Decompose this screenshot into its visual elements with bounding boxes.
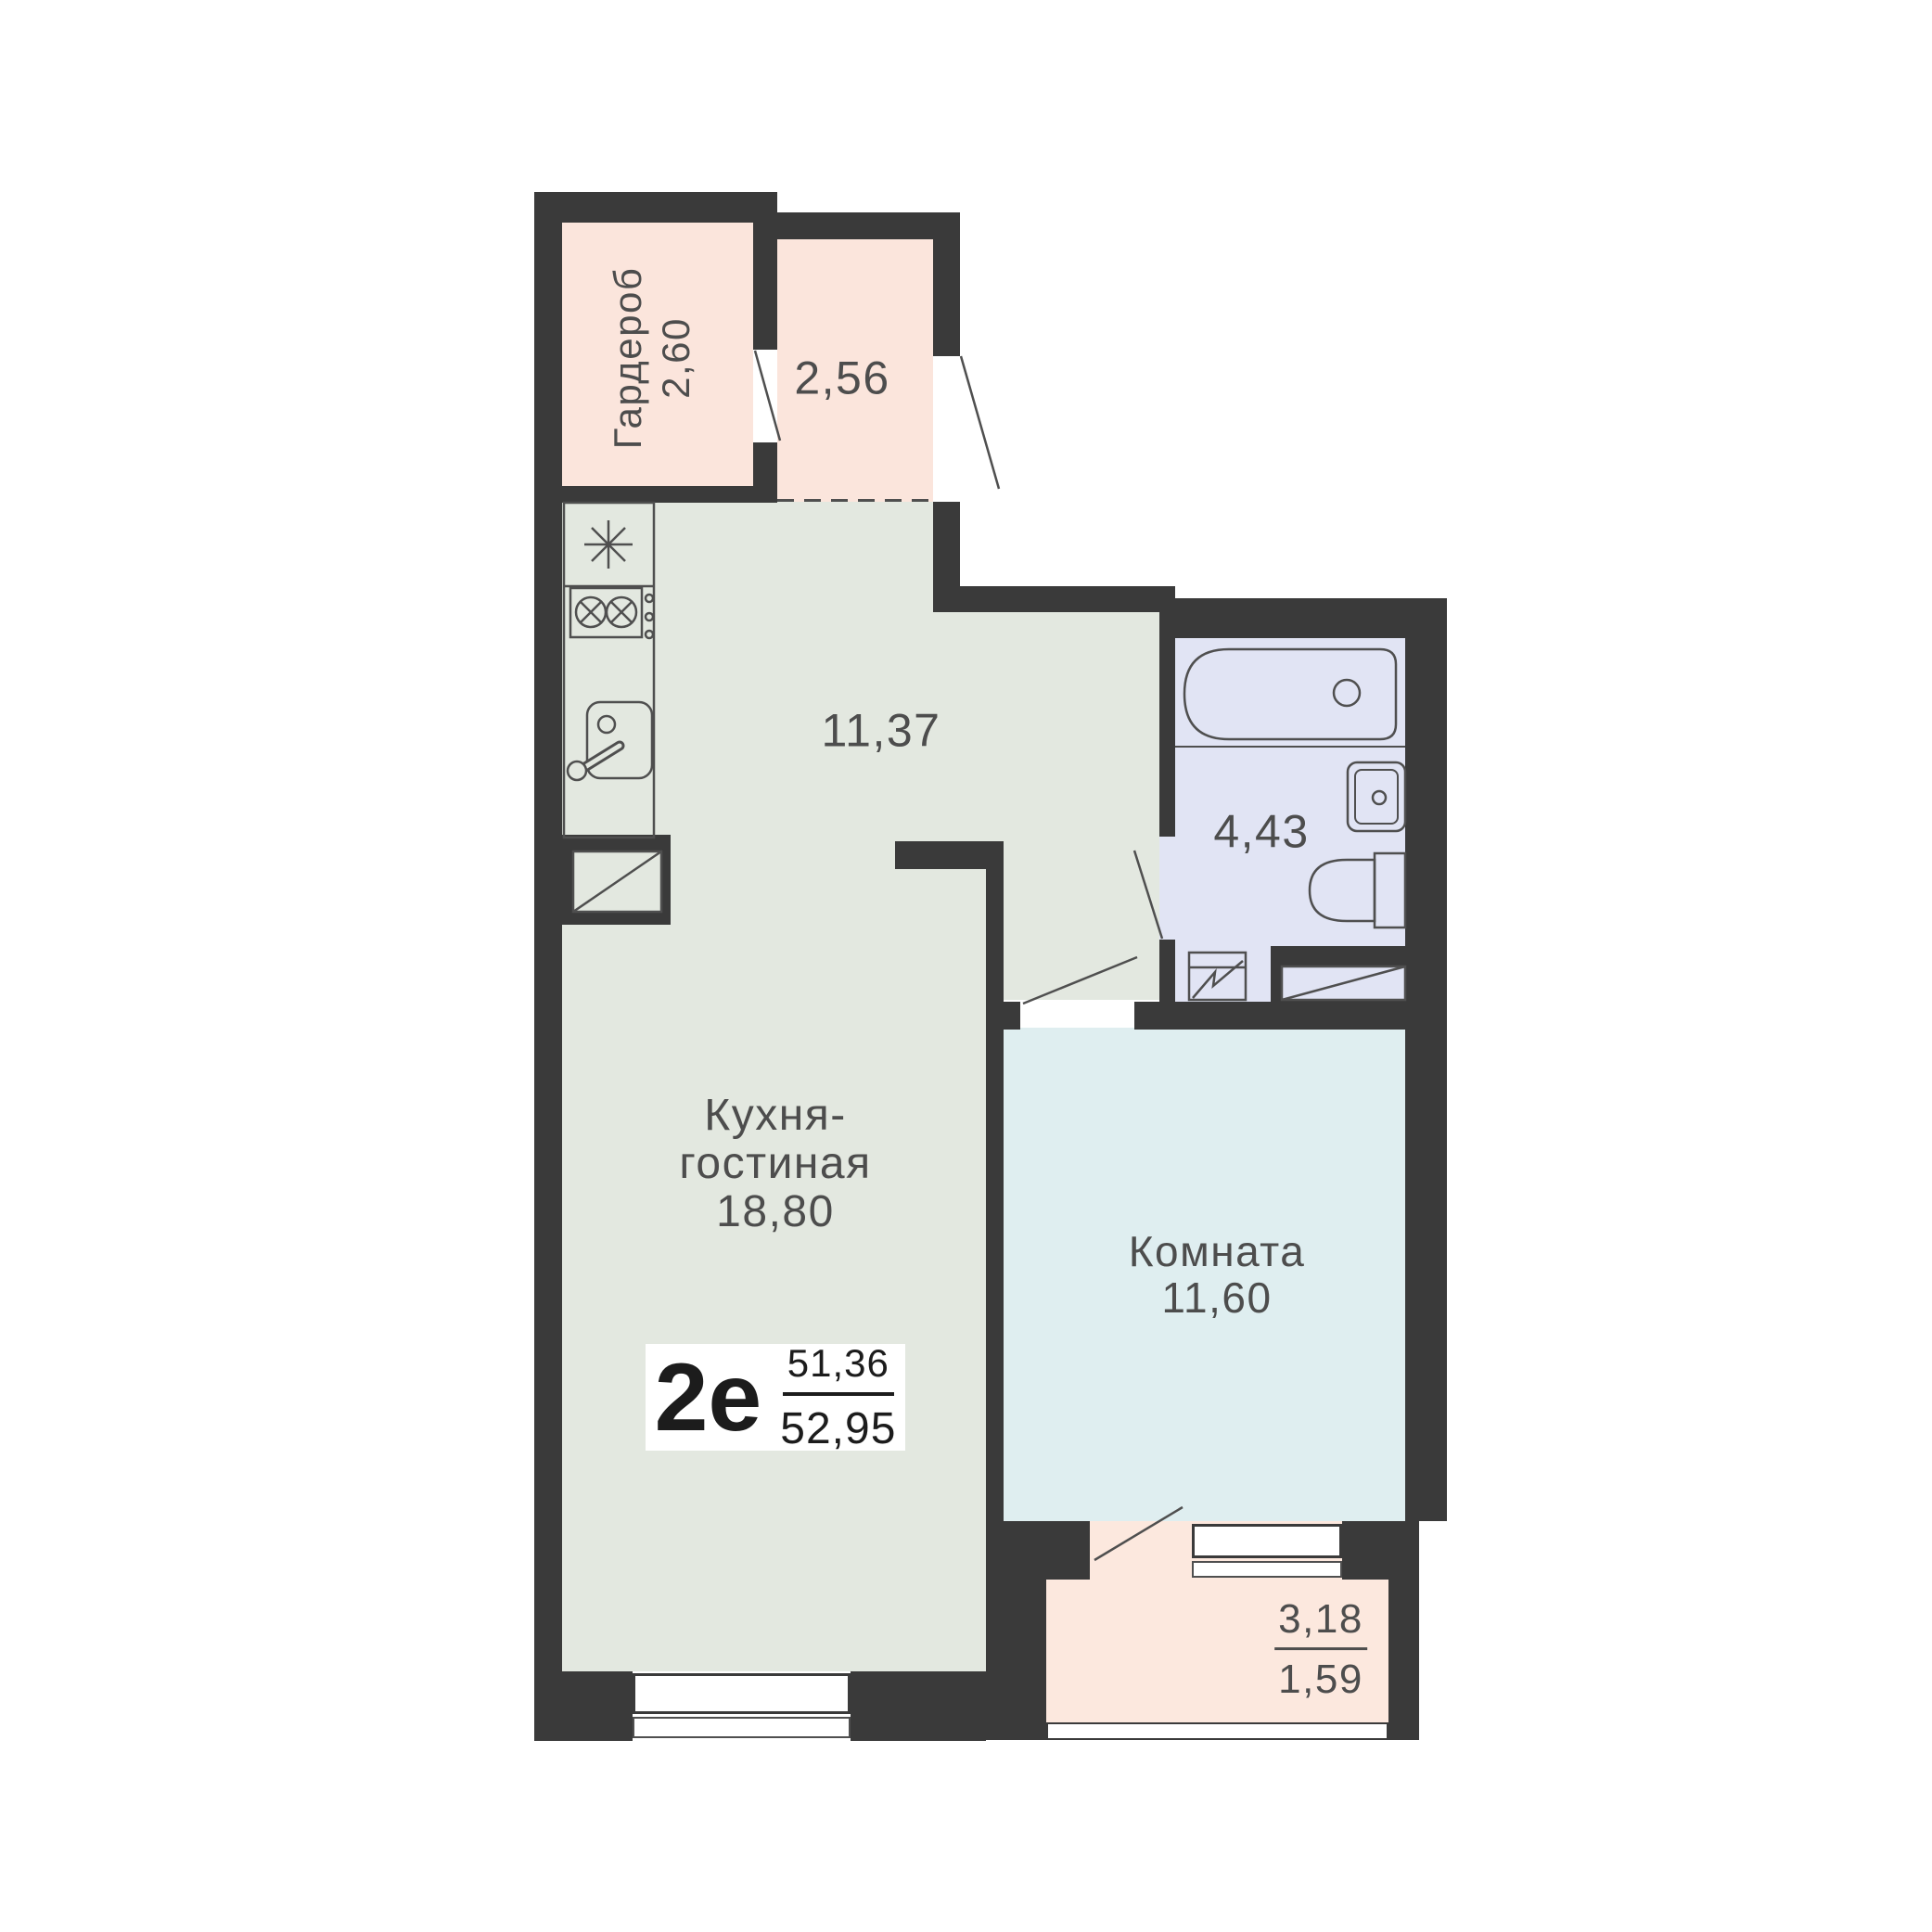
kitchen-area: 18,80 — [679, 1188, 871, 1236]
label-wardrobe: Гардероб 2,60 — [604, 267, 700, 450]
apartment-type-code: 2е — [655, 1350, 762, 1446]
balcony-area-counted: 1,59 — [1274, 1658, 1367, 1703]
wardrobe-door-swing — [755, 351, 780, 441]
wardrobe-area: 2,60 — [652, 267, 700, 450]
balcony-area-total: 3,18 — [1274, 1597, 1367, 1650]
apartment-areas: 51,36 52,95 — [780, 1341, 896, 1454]
kitchen-vent-icon — [573, 851, 661, 912]
stove-icon — [570, 588, 653, 638]
bathtub-icon — [1175, 649, 1405, 747]
washing-machine-icon — [1189, 953, 1246, 1000]
label-balcony: 3,18 1,59 — [1274, 1597, 1367, 1703]
label-room: Комната 11,60 — [1129, 1228, 1306, 1321]
bathroom-area: 4,43 — [1213, 806, 1309, 858]
balcony-door-swing — [1094, 1507, 1183, 1560]
apartment-area-total: 52,95 — [780, 1396, 896, 1454]
label-bathroom: 4,43 — [1213, 807, 1309, 858]
label-kitchen-living: Кухня- гостиная 18,80 — [679, 1092, 871, 1236]
toilet-icon — [1310, 853, 1405, 928]
room-name: Комната — [1129, 1228, 1306, 1274]
label-corridor: 11,37 — [822, 706, 941, 757]
room-area: 11,60 — [1129, 1274, 1306, 1321]
wardrobe-name: Гардероб — [604, 267, 652, 450]
kitchen-sink-icon — [568, 702, 652, 780]
bathroom-door-swing — [1134, 851, 1162, 939]
fridge-icon — [584, 520, 633, 569]
apartment-area-living: 51,36 — [783, 1341, 894, 1396]
kitchen-name-line2: гостиная — [679, 1140, 871, 1188]
kitchen-name-line1: Кухня- — [679, 1092, 871, 1140]
bathroom-sink-icon — [1348, 762, 1405, 831]
room-door-swing — [1023, 957, 1137, 1004]
fixtures-layer — [0, 0, 1932, 1932]
floor-plan: Гардероб 2,60 2,56 11,37 4,43 Кухня- гос… — [0, 0, 1932, 1932]
bathroom-vent-icon — [1282, 966, 1405, 1000]
apartment-type-badge: 2е 51,36 52,95 — [646, 1344, 905, 1451]
corridor-area: 11,37 — [822, 705, 941, 757]
entrance-door-swing — [961, 356, 999, 489]
hallway-area: 2,56 — [794, 352, 889, 404]
label-hallway: 2,56 — [794, 353, 889, 404]
